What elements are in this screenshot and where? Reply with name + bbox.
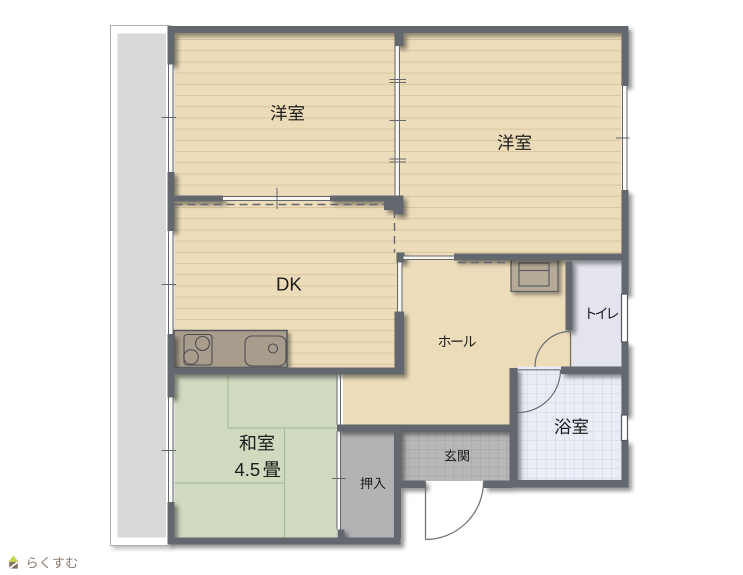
svg-text:DK: DK <box>276 274 302 295</box>
svg-text:4.5: 4.5 <box>235 459 261 480</box>
